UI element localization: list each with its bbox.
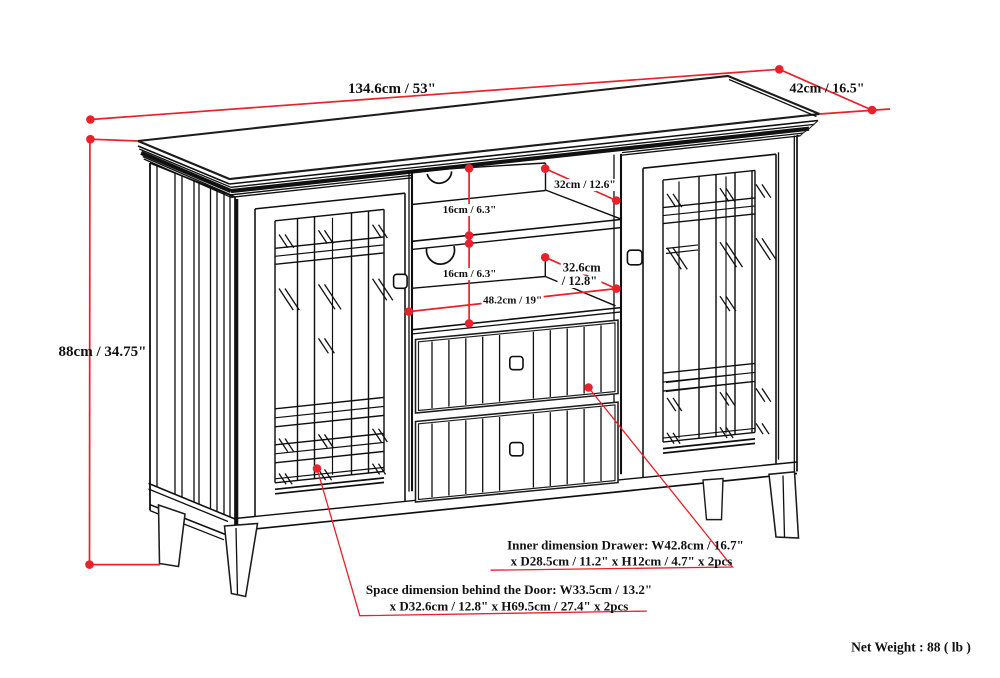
svg-text:32.6cm: 32.6cm <box>563 261 601 275</box>
svg-text:Space dimension behind the Doo: Space dimension behind the Door: W33.5cm… <box>366 582 652 597</box>
svg-text:88cm / 34.75": 88cm / 34.75" <box>59 344 147 360</box>
svg-text:134.6cm / 53": 134.6cm / 53" <box>348 81 436 97</box>
svg-text:x D32.6cm / 12.8" x H69.5cm /: x D32.6cm / 12.8" x H69.5cm / 27.4" x 2p… <box>390 599 629 614</box>
svg-text:/ 12.8": / 12.8" <box>561 274 597 288</box>
svg-text:32cm / 12.6": 32cm / 12.6" <box>554 179 616 191</box>
svg-text:Net Weight : 88 ( lb ): Net Weight : 88 ( lb ) <box>851 640 971 655</box>
svg-text:16cm / 6.3": 16cm / 6.3" <box>443 268 496 280</box>
svg-text:48.2cm / 19": 48.2cm / 19" <box>483 295 542 307</box>
svg-text:Inner dimension Drawer: W42.8c: Inner dimension Drawer: W42.8cm / 16.7" <box>507 538 744 553</box>
svg-text:16cm / 6.3": 16cm / 6.3" <box>443 204 496 216</box>
svg-text:42cm / 16.5": 42cm / 16.5" <box>789 82 864 97</box>
svg-text:x D28.5cm / 11.2" x H12cm / 4.: x D28.5cm / 11.2" x H12cm / 4.7" x 2pcs <box>511 554 733 569</box>
